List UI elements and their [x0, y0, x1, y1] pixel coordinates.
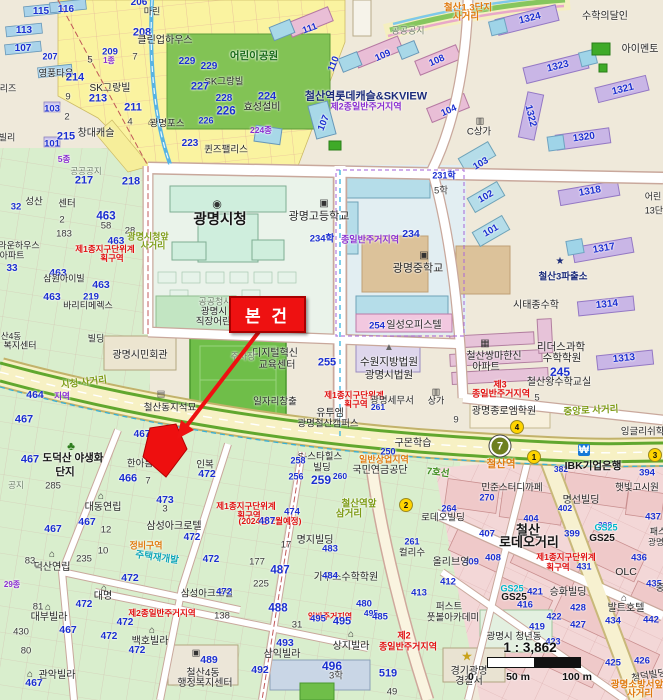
- scale-ratio: 1 : 3,862: [468, 640, 592, 655]
- map-base-graphics: [0, 0, 663, 700]
- scale-bar: 1 : 3,862 0 50 m 100 m: [468, 640, 592, 683]
- scale-ticks: 0 50 m 100 m: [468, 671, 592, 683]
- scale-seg-white: [488, 658, 534, 667]
- scale-tick-50: 50 m: [506, 671, 530, 683]
- scale-tick-100: 100 m: [562, 671, 592, 683]
- scale-tick-0: 0: [468, 671, 474, 683]
- scale-bar-graphic: [487, 657, 581, 668]
- scale-seg-black: [534, 658, 580, 667]
- map-canvas[interactable]: 206116115마린수학의달인철산1,3단지사거리1324공공공지113208…: [0, 0, 663, 700]
- subject-label: 본 건: [245, 302, 290, 327]
- subject-marker: 본 건: [229, 296, 306, 333]
